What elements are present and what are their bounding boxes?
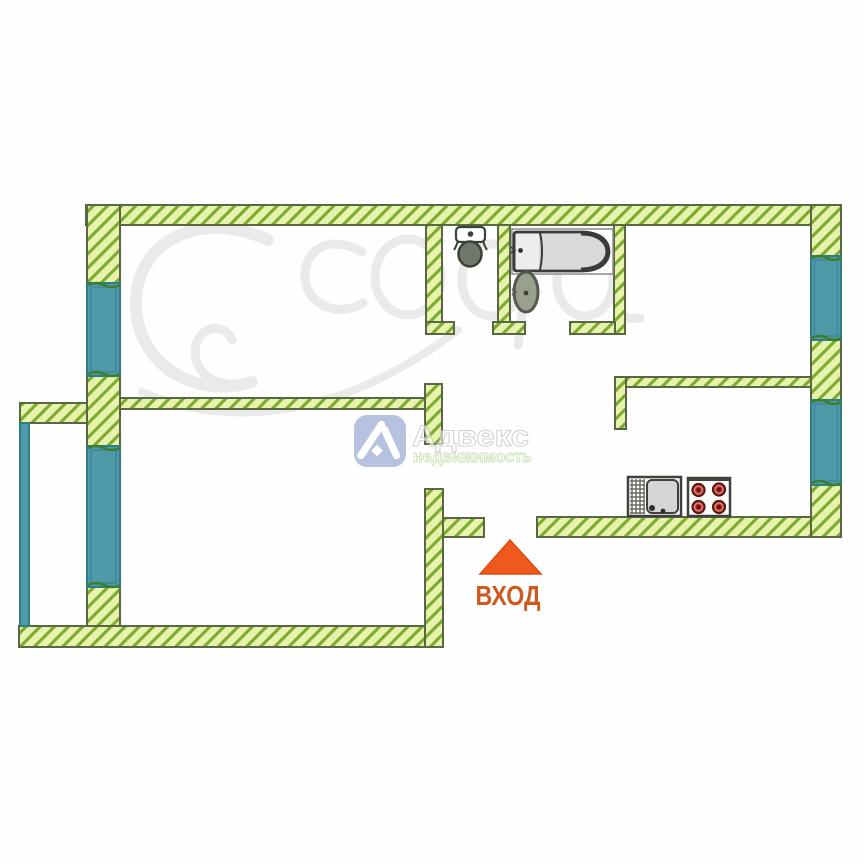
svg-text:ВХОД: ВХОД	[476, 580, 541, 611]
svg-text:недвижимость: недвижимость	[413, 448, 532, 466]
